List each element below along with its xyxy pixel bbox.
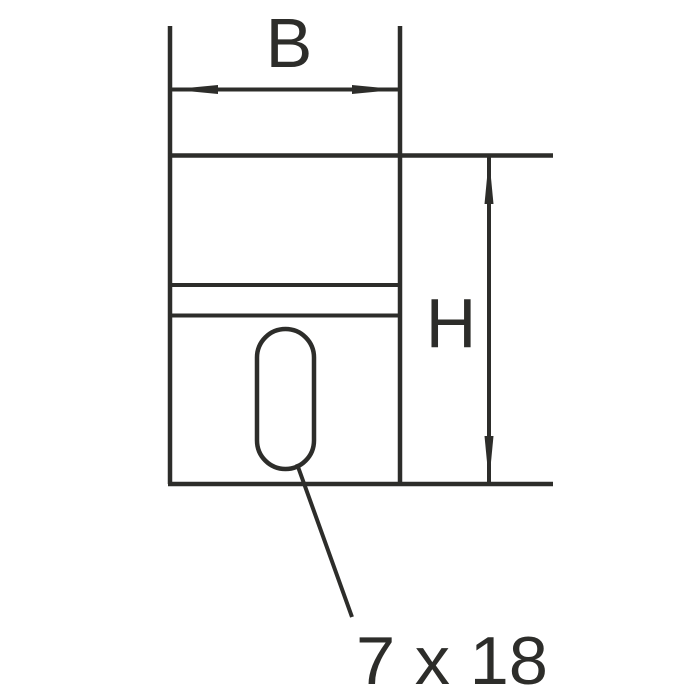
height-dim-arrow-top-icon [485,157,494,204]
drawing-canvas: B H 7 x 18 [0,0,700,700]
slot-leader-line [297,464,352,617]
width-dim-label: B [266,4,313,82]
width-dim-arrow-right-icon [352,85,399,94]
width-dim-arrow-left-icon [171,85,218,94]
height-dim-label: H [426,284,477,362]
slot-outline [257,329,314,469]
height-dim-arrow-bottom-icon [485,436,494,483]
slot-size-label: 7 x 18 [356,623,548,699]
technical-drawing: B H 7 x 18 [0,0,700,700]
